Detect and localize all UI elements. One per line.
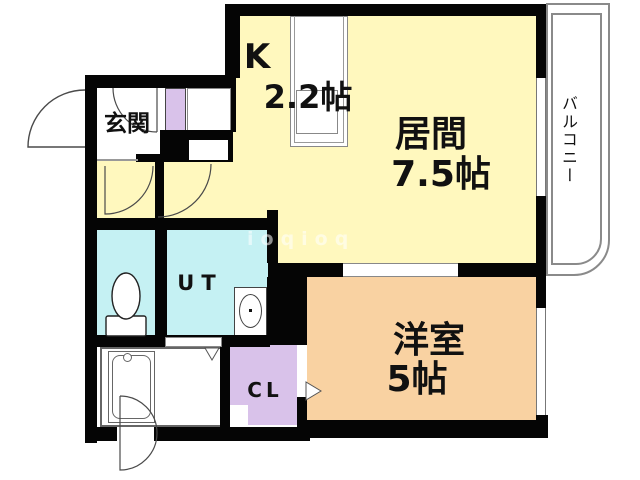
wall-closet-top (220, 337, 307, 345)
washbasin-drain-dot (249, 309, 252, 312)
wall-right-lower (536, 277, 546, 308)
wall-left (85, 75, 97, 443)
wall-hall-pillar (155, 160, 164, 220)
storage-box (187, 88, 231, 132)
kitchen-label: K (244, 37, 270, 77)
wall-entrance-top (85, 75, 236, 88)
wall-bottom-right (302, 420, 548, 438)
entrance-door-arc (28, 90, 85, 147)
living-western-opening (343, 263, 458, 277)
living-size: 7.5帖 (391, 145, 491, 197)
entrance-step-line (97, 159, 138, 161)
wall-kitchen-left (225, 4, 240, 78)
entrance-label: 玄関 (104, 104, 150, 138)
bathroom-entry-opening (165, 337, 222, 347)
closet-floor-lower (248, 400, 297, 425)
kitchen-size: 2.2帖 (264, 72, 353, 118)
floorplan-canvas: K 2.2帖 居間 7.5帖 洋室 5帖 玄関 UT CL バルコニー ioqi… (0, 0, 640, 480)
wall-utility-corner-block (267, 277, 307, 343)
wall-top (225, 4, 546, 16)
wall-right-upper (536, 16, 546, 78)
bathtub-inner (112, 355, 151, 419)
balcony-label: バルコニー (556, 95, 580, 185)
storage-opening (189, 140, 228, 160)
toilet-floor (97, 230, 157, 337)
wall-storage-right (231, 88, 236, 132)
wall-closet-right-lower (297, 397, 307, 427)
western-window (536, 308, 546, 415)
wall-right-corner (536, 415, 548, 438)
bathroom-door-opening (117, 427, 154, 441)
wall-toilet-utility-divider (155, 218, 167, 347)
shoe-cabinet (165, 88, 186, 132)
ldk-floor (233, 16, 536, 263)
watermark-text: ioqioq (247, 228, 355, 250)
closet-label: CL (247, 378, 282, 402)
utility-label: UT (177, 271, 222, 295)
living-window (536, 78, 546, 196)
wall-closet-left (220, 343, 230, 427)
bath-faucet-icon (123, 353, 132, 362)
western-room-size: 5帖 (386, 350, 447, 402)
